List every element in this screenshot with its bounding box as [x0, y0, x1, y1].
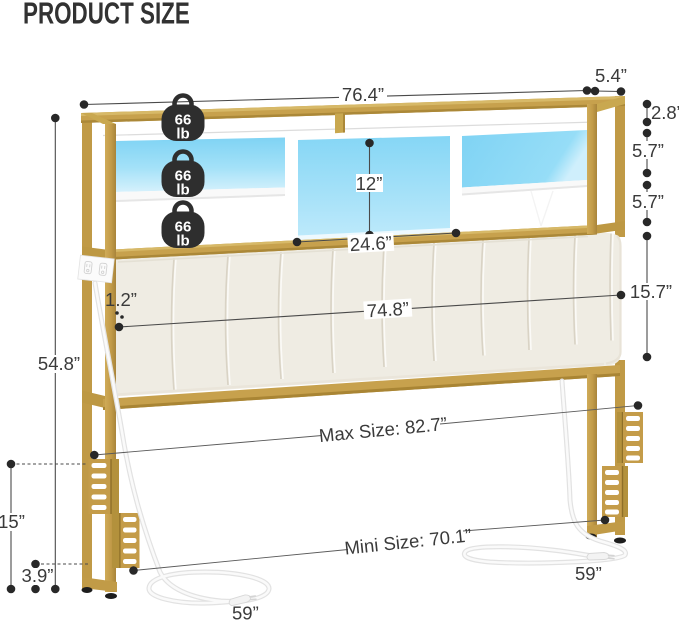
svg-text:12”: 12” — [356, 173, 383, 194]
svg-text:76.4”: 76.4” — [342, 84, 384, 105]
svg-text:lb: lb — [176, 233, 189, 250]
svg-text:15.7”: 15.7” — [630, 281, 672, 302]
svg-text:5.7”: 5.7” — [632, 140, 664, 161]
svg-text:PRODUCT SIZE: PRODUCT SIZE — [23, 0, 190, 30]
svg-text:lb: lb — [176, 126, 189, 143]
svg-text:3.9”: 3.9” — [22, 565, 54, 586]
svg-text:54.8”: 54.8” — [38, 353, 80, 374]
svg-text:5.7”: 5.7” — [632, 191, 664, 212]
svg-text:74.8”: 74.8” — [366, 298, 409, 322]
svg-text:2.8”: 2.8” — [651, 102, 679, 123]
svg-text:59”: 59” — [575, 563, 602, 584]
svg-text:1.2”: 1.2” — [105, 289, 137, 310]
svg-text:59”: 59” — [232, 603, 259, 620]
svg-text:5.4”: 5.4” — [595, 65, 627, 86]
svg-text:lb: lb — [176, 182, 189, 199]
svg-text:24.6”: 24.6” — [349, 232, 392, 255]
svg-text:15”: 15” — [0, 511, 25, 532]
